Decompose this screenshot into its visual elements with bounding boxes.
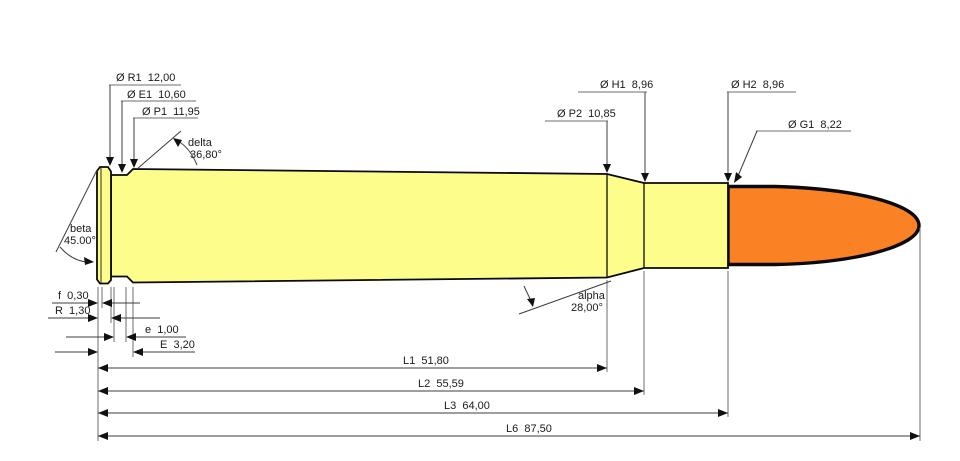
bullet [728,187,919,265]
case-body [111,169,728,283]
r-label: R 1,30 [55,305,90,317]
f-label: f 0,30 [58,290,89,302]
e-arrow-left-icon [104,333,114,341]
alpha-arrow-icon [527,298,535,307]
alpha-value-label: 28,00° [571,302,603,314]
case-rim [97,167,111,284]
l1-arrow-right-icon [597,364,607,372]
f-arrow-right-icon [102,299,112,307]
p1-arrow-icon [130,159,138,168]
g1-diagonal [738,131,757,176]
alpha-name-label: alpha [578,290,606,302]
delta-line [137,131,181,169]
E-arrow-left-icon [88,348,98,356]
E-arrow-right-icon [133,348,143,356]
h1-arrow-icon [641,173,649,182]
l6-arrow-right-icon [910,432,920,440]
l1-label: L1 51,80 [403,355,449,367]
r-arrow-right-icon [111,314,121,322]
E-label: E 3,20 [160,339,195,351]
g1-label: Ø G1 8,22 [788,119,842,131]
l3-arrow-right-icon [718,409,728,417]
l6-label: L6 87,50 [506,423,552,435]
h2-label: Ø H2 8,96 [731,79,784,91]
cartridge [97,167,919,284]
beta-name-label: beta [70,223,92,235]
delta-value-label: 36,80° [190,149,222,161]
r1-arrow-icon [106,157,114,166]
h1-label: Ø H1 8,96 [600,79,653,91]
p2-label: Ø P2 10,85 [557,108,616,120]
beta-arrow-icon [84,257,94,265]
l2-arrow-right-icon [634,387,644,395]
delta-name-label: delta [188,137,213,149]
r1-label: Ø R1 12,00 [116,72,175,84]
e1-label: Ø E1 10,60 [127,89,186,101]
l6-arrow-left-icon [98,432,108,440]
beta-arc [60,247,88,262]
p1-label: Ø P1 11,95 [142,106,200,118]
diameter-leaders [106,85,851,183]
e-arrow-right-icon [126,333,136,341]
l2-arrow-left-icon [98,387,108,395]
l1-arrow-left-icon [98,364,108,372]
l2-label: L2 55,59 [418,378,464,390]
e1-arrow-icon [118,164,126,173]
h2-arrow-icon [724,173,732,182]
diagram-canvas: Ø R1 12,00 Ø E1 10,60 Ø P1 11,95 delta 3… [0,0,960,461]
e-label: e 1,00 [145,324,179,336]
cartridge-diagram: Ø R1 12,00 Ø E1 10,60 Ø P1 11,95 delta 3… [0,0,960,461]
l3-label: L3 64,00 [444,400,490,412]
g1-arrow-icon [734,172,742,183]
beta-value-label: 45.00° [64,235,96,247]
p2-arrow-icon [603,164,611,173]
l3-arrow-left-icon [98,409,108,417]
